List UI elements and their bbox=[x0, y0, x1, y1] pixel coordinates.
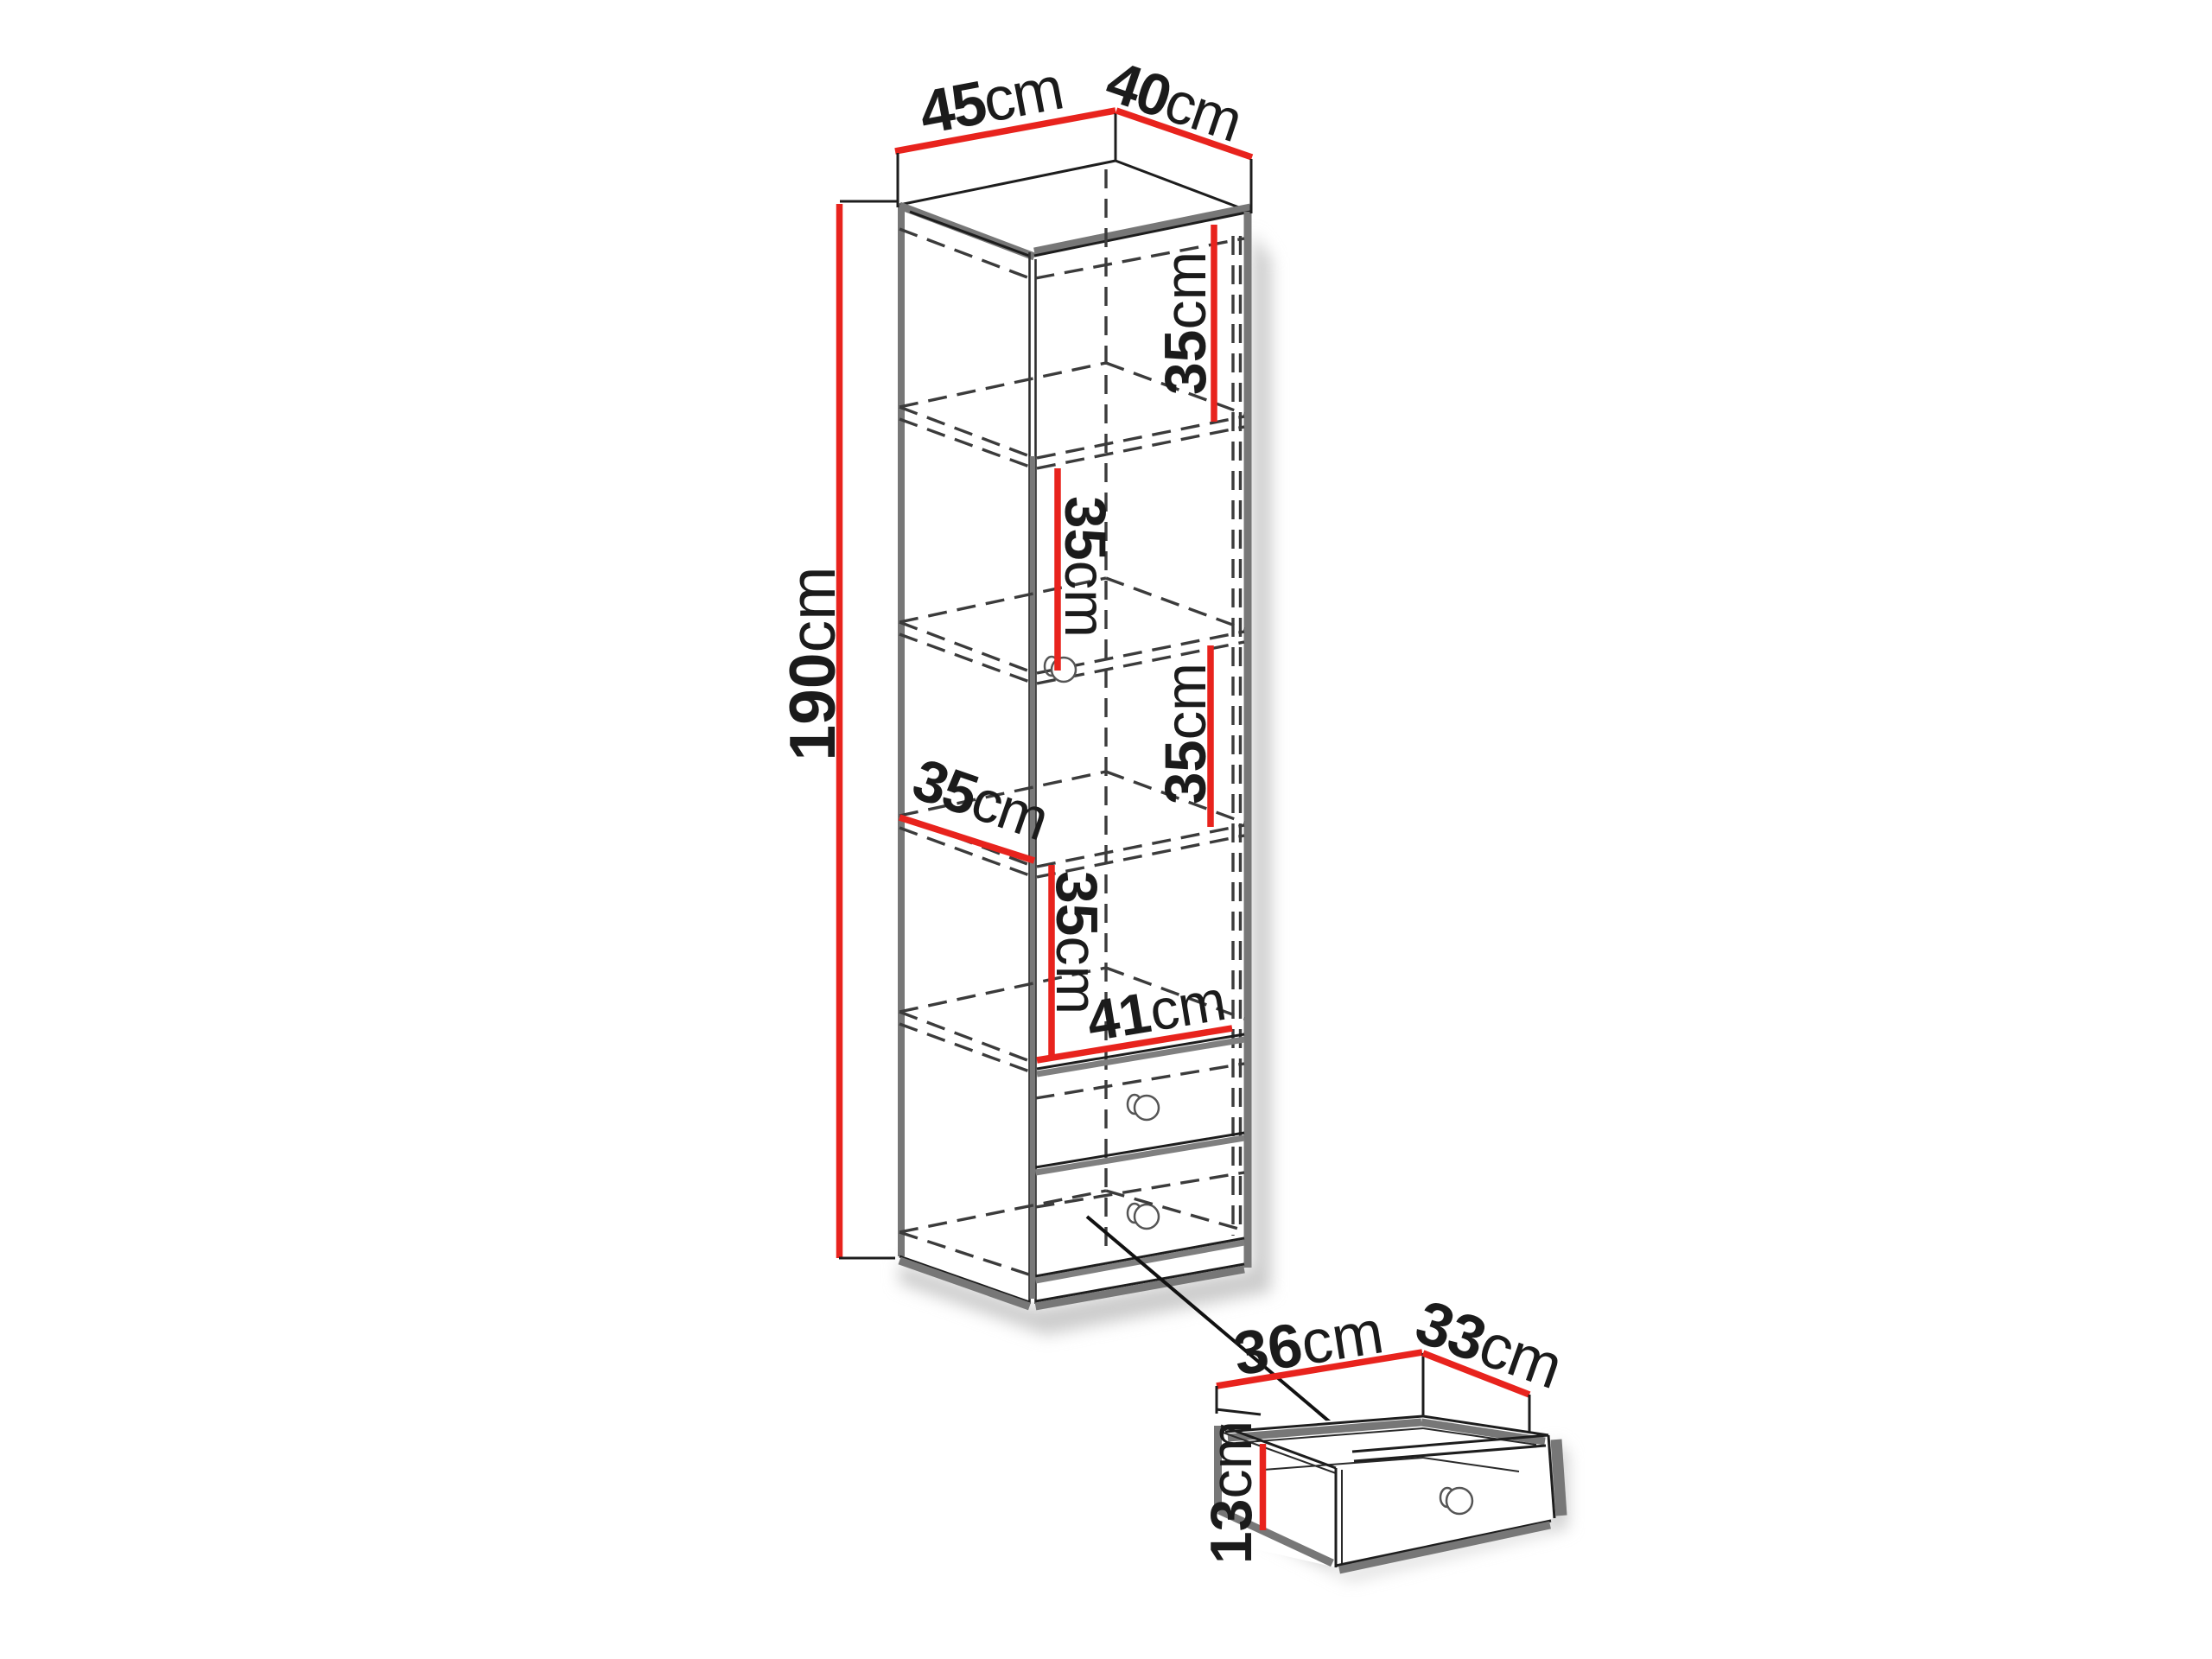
svg-text:190cm: 190cm bbox=[776, 566, 849, 760]
svg-text:35cm: 35cm bbox=[1153, 251, 1218, 395]
svg-text:35cm: 35cm bbox=[1154, 663, 1218, 804]
svg-text:13cm: 13cm bbox=[1198, 1421, 1264, 1564]
svg-text:35cm: 35cm bbox=[1052, 496, 1117, 638]
